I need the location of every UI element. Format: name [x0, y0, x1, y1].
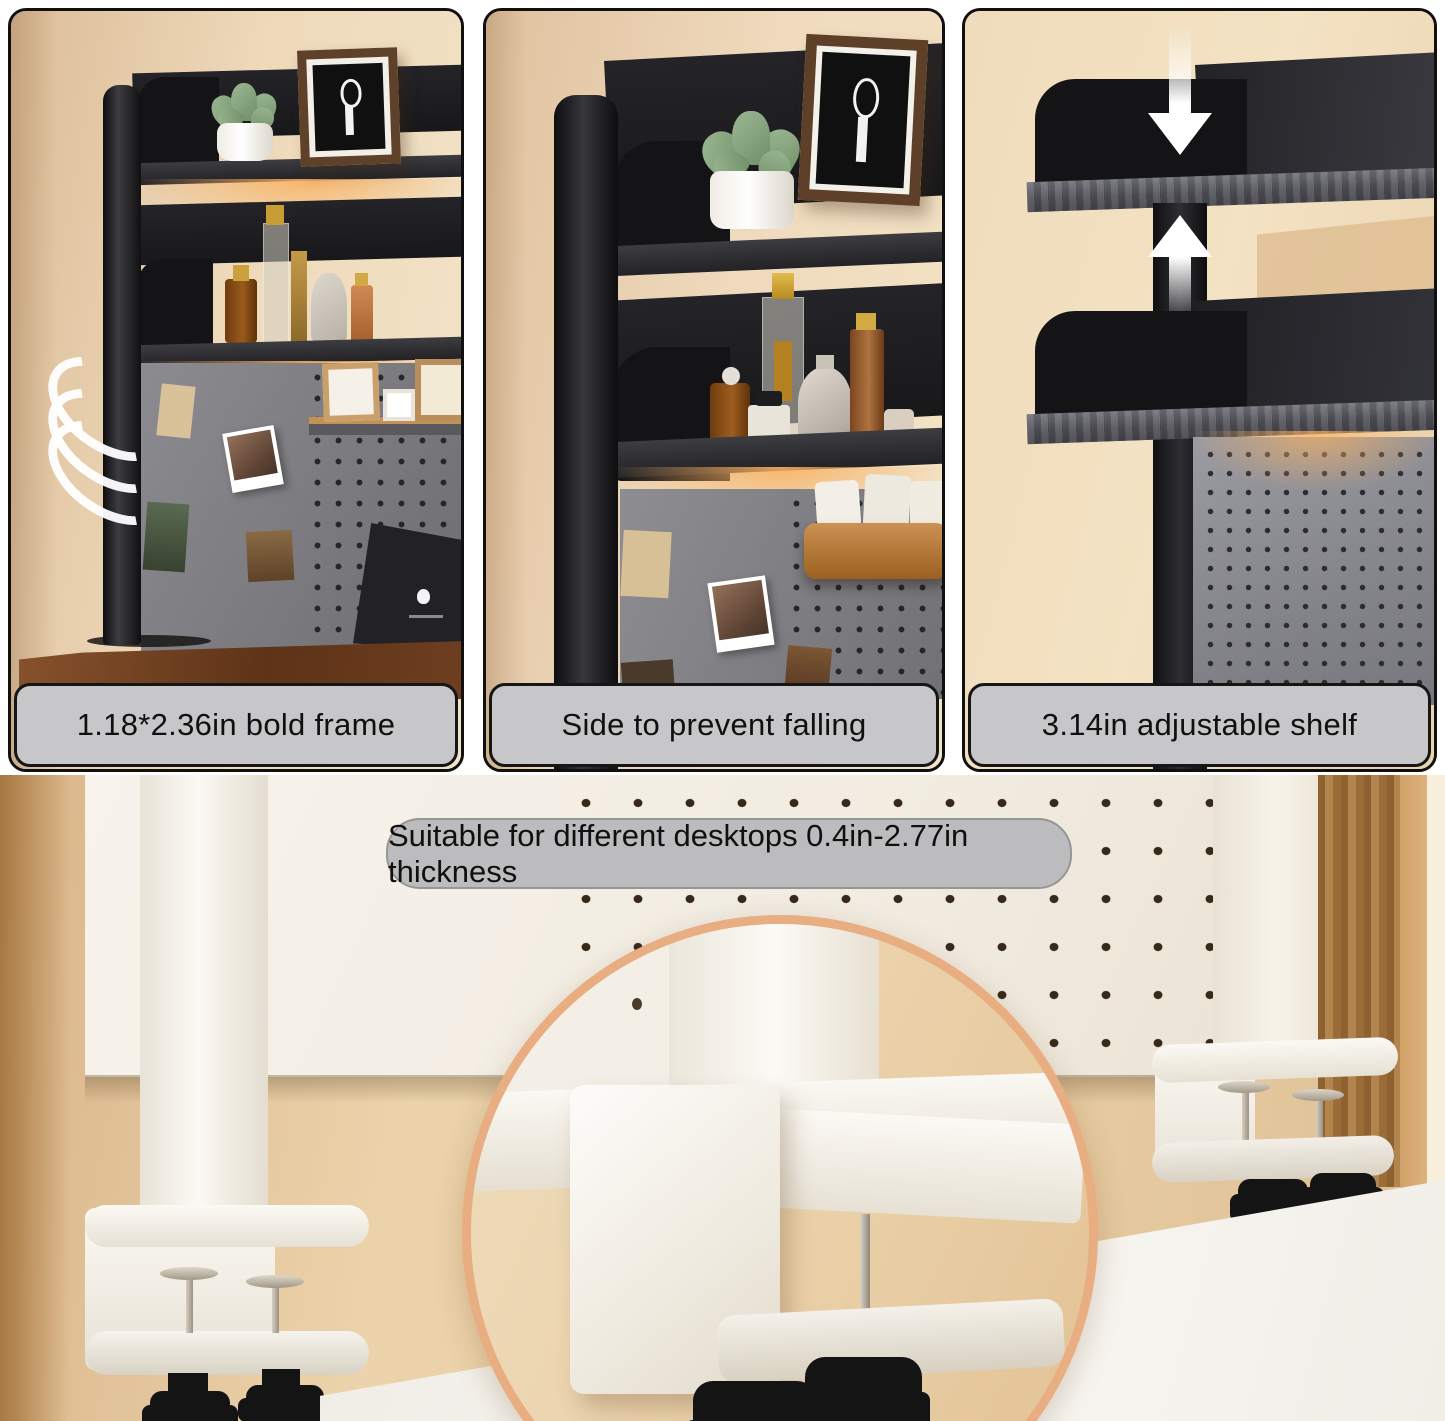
polaroid-photo [222, 425, 284, 493]
arrow-down-shaft [1169, 23, 1191, 117]
thumb-screw-cap [1292, 1089, 1344, 1101]
clamp-top-arm [85, 1205, 369, 1247]
clamp-knob [246, 1385, 324, 1421]
panel-side-guard: Side to prevent falling [483, 8, 945, 772]
frame-art [816, 52, 911, 188]
inset-pegboard-hole [632, 998, 642, 1010]
caption-bold-frame: 1.18*2.36in bold frame [14, 683, 458, 767]
thumb-screw-cap [1218, 1081, 1270, 1093]
mini-frame [322, 362, 380, 422]
perfume-cap [816, 355, 834, 369]
panel-bold-frame: 1.18*2.36in bold frame [8, 8, 464, 772]
caption-text: Suitable for different desktops 0.4in-2.… [388, 818, 1070, 890]
photo-frame [798, 34, 929, 206]
thumb-screw-cap [160, 1267, 218, 1280]
perfume-cap [756, 391, 782, 406]
perfume-bottle [850, 329, 884, 443]
frame-art [313, 63, 386, 151]
caption-text: 1.18*2.36in bold frame [77, 707, 396, 743]
perfume-bottle [311, 273, 347, 343]
pegboard-side-edge [1213, 775, 1318, 1077]
pinned-card [620, 530, 671, 598]
product-collage: 1.18*2.36in bold frame [0, 0, 1445, 1421]
thumb-screw-cap [246, 1275, 304, 1288]
perfume-cap [233, 265, 249, 281]
led-glow [1193, 431, 1437, 491]
perfume-bottle [710, 383, 750, 443]
caption-desk-thickness: Suitable for different desktops 0.4in-2.… [386, 818, 1072, 889]
inset-clamp-top-arm [747, 1107, 1085, 1223]
pegboard-tray [804, 523, 945, 579]
clamp-bottom-arm [85, 1331, 369, 1375]
wall-shadow [0, 775, 70, 1421]
perfume-cap [355, 273, 368, 286]
perfume-bottle [291, 251, 307, 343]
plant-pot [217, 123, 273, 161]
arrow-up-icon [1148, 215, 1212, 257]
perfume-cap [722, 367, 740, 385]
caption-text: Side to prevent falling [561, 707, 866, 743]
perfume-bottle [263, 223, 289, 345]
perfume-cap [266, 205, 284, 225]
mini-frame [383, 389, 415, 421]
desk-pole [554, 95, 618, 772]
caption-side-guard: Side to prevent falling [489, 683, 939, 767]
pinned-card [246, 530, 295, 582]
apple-logo-icon [417, 589, 430, 604]
perfume-cap [856, 313, 876, 330]
caption-text: 3.14in adjustable shelf [1042, 707, 1357, 743]
mini-frame [415, 359, 464, 421]
rotation-arcs-icon [35, 367, 205, 497]
wood-trim [1318, 775, 1400, 1187]
panel-adjustable-shelf: 3.14in adjustable shelf [962, 8, 1437, 772]
plant-pot [710, 171, 794, 229]
thumb-screw [1242, 1089, 1249, 1145]
panel-clamp-thickness: Suitable for different desktops 0.4in-2.… [0, 775, 1445, 1421]
wall-shadow [486, 11, 526, 769]
laptop [353, 523, 464, 651]
photo-frame [297, 47, 401, 166]
perfume-bottle [225, 279, 257, 343]
shelf-side-guard [137, 259, 213, 355]
perfume-bottle [351, 285, 373, 343]
polaroid-photo [707, 575, 774, 652]
perfume-cap [772, 273, 794, 299]
thumb-screw [186, 1275, 193, 1333]
riser-post [140, 775, 268, 1217]
arrow-down-icon [1148, 113, 1212, 155]
inset-clamp-knob [805, 1357, 922, 1421]
clamp-knob [150, 1391, 230, 1421]
caption-adjustable-shelf: 3.14in adjustable shelf [968, 683, 1431, 767]
thumb-screw [272, 1283, 279, 1333]
